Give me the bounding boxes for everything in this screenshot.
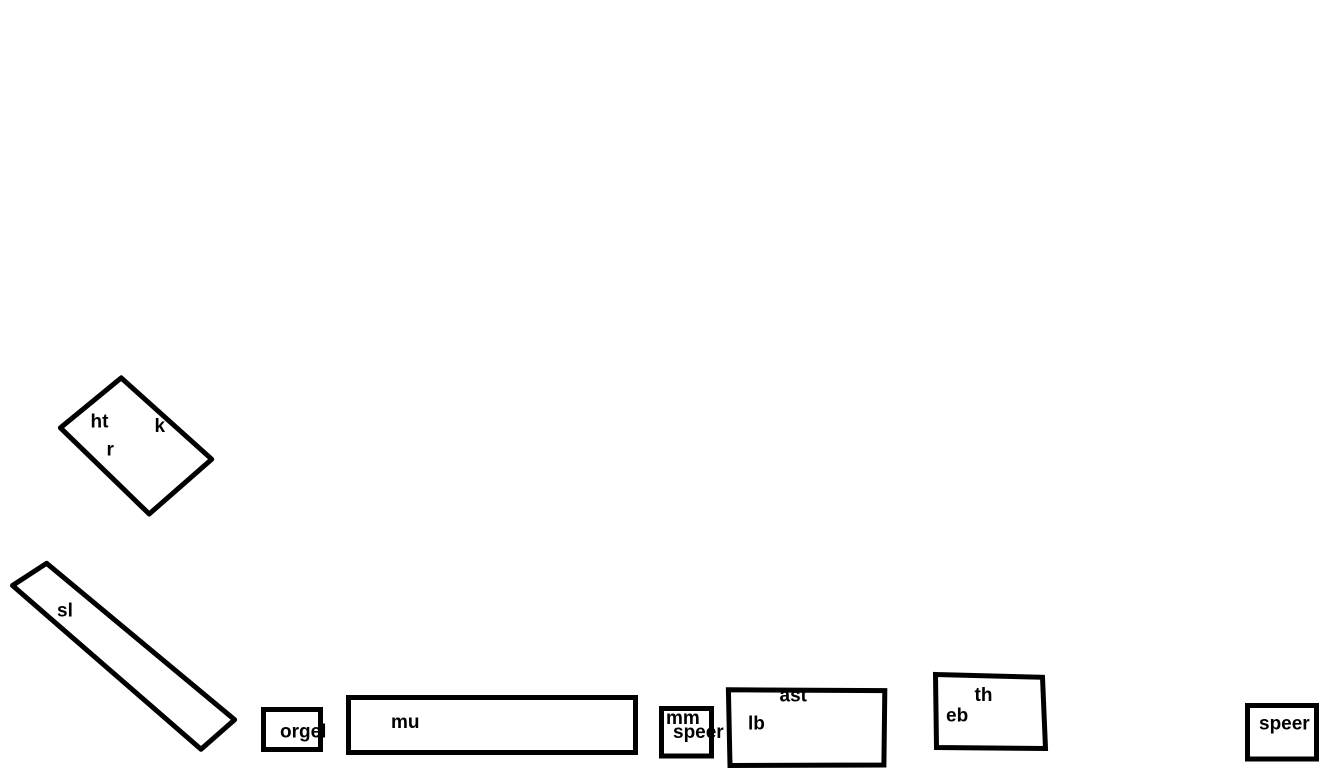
svg-text:sl: sl [57,601,73,622]
svg-text:k: k [155,416,166,437]
svg-text:lb: lb [748,714,765,735]
svg-text:speer: speer [673,722,724,743]
svg-text:th: th [975,685,993,706]
svg-text:ht: ht [91,412,110,433]
svg-text:orgel: orgel [280,722,326,743]
svg-text:speer: speer [1259,714,1310,735]
svg-text:r: r [107,440,115,461]
svg-text:eb: eb [946,705,968,726]
svg-text:mu: mu [391,712,420,733]
